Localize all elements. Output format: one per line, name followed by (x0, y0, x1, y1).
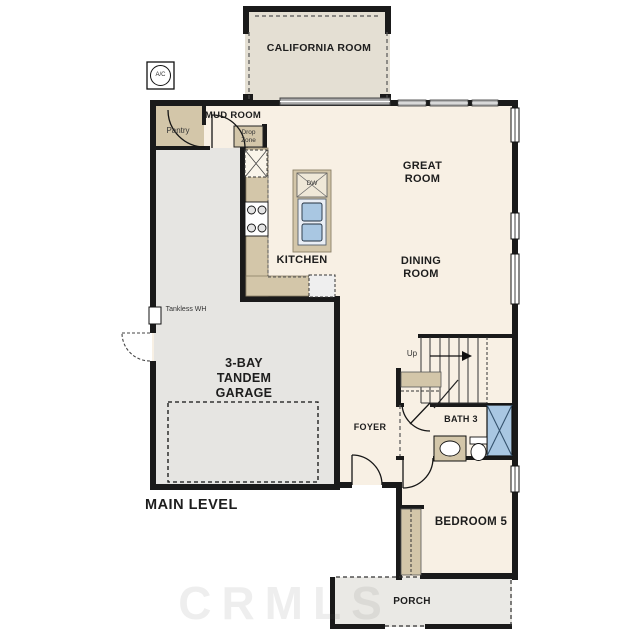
tankless-wh-label: Tankless WH (163, 306, 209, 314)
wall-segment (512, 100, 518, 580)
mud-room-label: MUD ROOM (198, 110, 268, 121)
window (511, 213, 519, 239)
wall-segment (396, 368, 401, 407)
wall-segment (334, 300, 340, 490)
kitchen-sink (298, 199, 326, 245)
main-level-label: MAIN LEVEL (145, 497, 255, 514)
great-room-label: GREAT ROOM (390, 160, 455, 186)
window (511, 108, 519, 142)
bedroom-closet (401, 509, 421, 575)
wall-segment (150, 484, 340, 490)
wall-segment (385, 6, 391, 34)
wall-segment (150, 361, 156, 490)
toilet (470, 437, 487, 461)
window (398, 100, 426, 106)
window (430, 100, 468, 106)
california-room-floor (245, 10, 390, 100)
window (472, 100, 498, 106)
garage-floor-upper (154, 148, 242, 302)
california-room-label: CALIFORNIA ROOM (245, 42, 393, 54)
refrigerator-space (309, 275, 335, 297)
kitchen-label: KITCHEN (270, 254, 334, 267)
window (511, 466, 519, 492)
garage-side-door-swing (122, 333, 150, 361)
dishwasher-label: DW (297, 180, 327, 188)
window (511, 254, 519, 304)
shower (487, 405, 512, 456)
tankless-water-heater (149, 307, 161, 324)
bath-label: BATH 3 (443, 414, 479, 425)
stairs-up-label: Up (402, 349, 422, 358)
watermark: CRMLS (70, 576, 500, 630)
cabinet-x (245, 150, 267, 177)
drop-zone-label: Drop Zone (235, 129, 262, 145)
garage-label: 3-BAY TANDEM GARAGE (212, 356, 276, 400)
range-cooktop (245, 202, 268, 236)
wall-segment (243, 6, 391, 12)
dining-room-label: DINING ROOM (388, 255, 454, 281)
floor-plan-drawing (0, 0, 640, 640)
bath-vanity-sink (434, 436, 466, 461)
wall-segment (150, 100, 156, 333)
bedroom-label: BEDROOM 5 (425, 516, 517, 530)
foyer-label: FOYER (346, 422, 394, 433)
pantry-label: Pantry (158, 126, 198, 135)
ac-unit-label: A/C (147, 72, 174, 79)
wall-segment (398, 505, 424, 509)
wall-segment (418, 334, 512, 338)
wall-segment (243, 6, 249, 34)
floor-plan: CALIFORNIA ROOM MUD ROOM Pantry Drop Zon… (0, 0, 640, 640)
